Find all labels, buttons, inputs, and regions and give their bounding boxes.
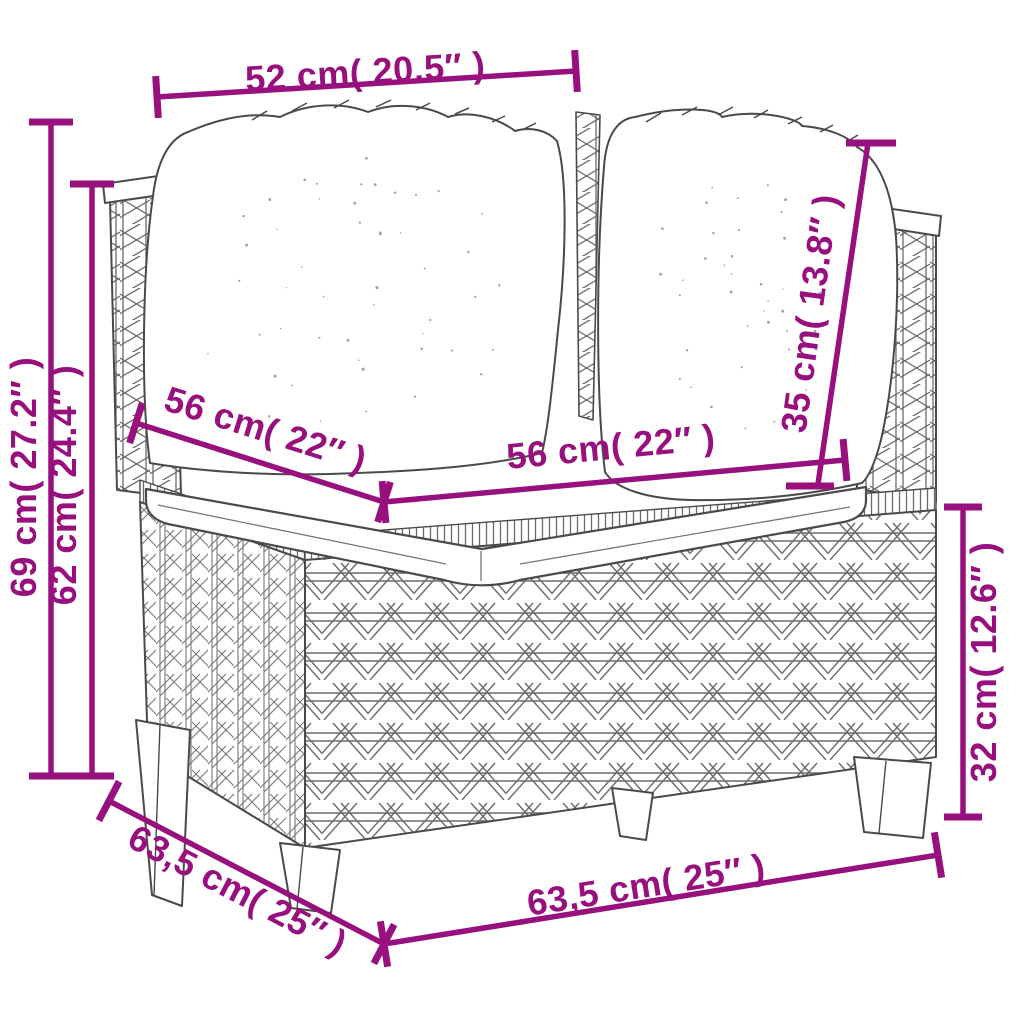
speckle-dot (360, 183, 362, 185)
speckle-dot (422, 333, 424, 335)
speckle-dot (744, 427, 746, 429)
speckle-dot (415, 194, 417, 196)
speckle-dot (659, 273, 662, 276)
speckle-dot (782, 289, 783, 290)
speckle-dot (781, 211, 783, 213)
speckle-dot (767, 321, 770, 324)
speckle-dot (492, 349, 494, 351)
speckle-dot (414, 396, 416, 398)
speckle-dot (280, 328, 281, 329)
speckle-dot (690, 387, 692, 389)
dimension-tick (843, 439, 847, 481)
speckle-dot (276, 229, 277, 230)
speckle-dot (359, 221, 361, 223)
speckle-dot (712, 232, 715, 235)
dimension-label-base-height: 32 cm( 12.6″ ) (963, 542, 1004, 782)
speckle-dot (207, 353, 209, 355)
speckle-dot (737, 197, 739, 199)
speckle-dot (274, 375, 277, 378)
sofa-leg-middle (612, 788, 653, 840)
dimension-top-width: 52 cm( 20.5″ ) (156, 44, 578, 118)
speckle-dot (286, 287, 287, 288)
speckle-dot (767, 300, 769, 302)
speckle-dot (362, 368, 365, 371)
speckle-dot (373, 304, 375, 306)
dimension-label-height-total: 69 cm( 27.2″ ) (3, 357, 44, 597)
speckle-dot (682, 279, 684, 281)
dimension-tick (99, 781, 119, 820)
speckle-dot (724, 264, 726, 266)
speckle-dot (686, 349, 688, 351)
speckle-dot (400, 232, 401, 233)
sofa-leg-rear-right (854, 757, 931, 838)
speckle-dot (268, 198, 271, 201)
speckle-dot (320, 420, 321, 421)
speckle-dot (747, 325, 749, 327)
speckle-dot (242, 215, 244, 217)
speckle-dot (365, 157, 368, 160)
speckle-dot (451, 349, 453, 351)
speckle-dot (763, 310, 764, 311)
dimension-width-total: 63,5 cm( 25″ ) (380, 832, 941, 966)
dimension-tick (156, 76, 159, 118)
speckle-dot (424, 268, 426, 270)
dimension-base-height: 32 cm( 12.6″ ) (944, 507, 1004, 817)
speckle-dot (346, 339, 349, 342)
speckle-dot (467, 251, 470, 254)
dimension-label-top-width: 52 cm( 20.5″ ) (244, 44, 486, 100)
speckle-dot (316, 183, 318, 185)
speckle-dot (498, 284, 500, 286)
speckle-dot (365, 411, 367, 413)
speckle-dot (781, 310, 784, 313)
speckle-dot (784, 198, 787, 201)
dimension-diagram: 52 cm( 20.5″ )69 cm( 27.2″ )62 cm( 24.4″… (0, 0, 1024, 1024)
speckle-dot (704, 257, 707, 260)
speckle-dot (731, 273, 733, 275)
speckle-dot (741, 366, 743, 368)
speckle-dot (358, 359, 360, 361)
speckle-dot (429, 319, 431, 321)
speckle-dot (767, 184, 769, 186)
speckle-dot (474, 296, 476, 298)
speckle-dot (710, 406, 713, 409)
dimension-label-width-total: 63,5 cm( 25″ ) (524, 846, 768, 924)
dimension-tick (382, 481, 386, 523)
speckle-dot (679, 378, 681, 380)
speckle-dot (730, 291, 733, 294)
speckle-dot (738, 229, 740, 231)
speckle-dot (480, 373, 482, 375)
speckle-dot (731, 255, 734, 258)
speckle-dot (303, 178, 306, 181)
speckle-dot (421, 348, 424, 351)
speckle-dot (291, 384, 293, 386)
speckle-dot (245, 244, 248, 247)
speckle-dot (323, 296, 325, 298)
corner-post (576, 112, 600, 420)
dimension-tick (934, 832, 941, 877)
speckle-dot (319, 198, 321, 200)
speckle-dot (705, 201, 708, 204)
speckle-dot (379, 233, 381, 235)
speckle-dot (353, 202, 356, 205)
speckle-dot (481, 213, 483, 215)
speckle-dot (661, 227, 664, 230)
speckle-dot (259, 334, 261, 336)
speckle-dot (375, 286, 378, 289)
speckle-dot (394, 191, 397, 194)
speckle-dot (318, 337, 320, 339)
speckle-dot (301, 266, 303, 268)
sofa-dimension-figure: 52 cm( 20.5″ )69 cm( 27.2″ )62 cm( 24.4″… (0, 0, 1024, 1024)
speckle-dot (711, 187, 713, 189)
dimension-tick (380, 921, 387, 966)
speckle-dot (760, 283, 763, 286)
dimension-label-height-arm: 62 cm( 24.4″ ) (43, 365, 84, 605)
speckle-dot (374, 183, 377, 186)
speckle-dot (438, 190, 440, 192)
speckle-dot (679, 294, 681, 296)
speckle-dot (783, 237, 786, 240)
dimension-tick (575, 50, 578, 92)
speckle-dot (238, 280, 240, 282)
